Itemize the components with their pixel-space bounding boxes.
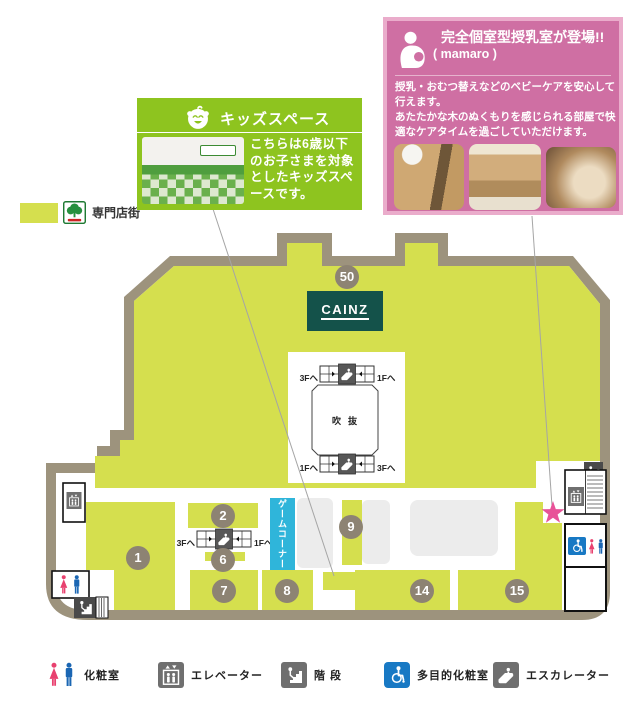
mamaro-pod-photo: [394, 144, 464, 210]
atrium-label: 吹抜: [318, 414, 378, 427]
legend-item-elevator: エレベーター: [158, 661, 263, 688]
mall-logo: [63, 201, 86, 224]
aisle-block: [362, 500, 390, 564]
accessible-icon: [384, 662, 410, 688]
anchor-store-sign: CAINZ: [307, 291, 383, 331]
game-corner-block: ゲームコーナー: [270, 498, 295, 570]
mamaro-callout-subtitle: ( mamaro ): [433, 47, 604, 61]
unit-badge-15: 15: [505, 579, 529, 603]
legend-item-escalator: エスカレーター: [493, 661, 610, 688]
mamaro-callout: 完全個室型授乳室が登場!! ( mamaro ) 授乳・おむつ替えなどのベビーケ…: [383, 17, 623, 215]
kids-space-photo: [142, 137, 244, 204]
anchor-store-label: CAINZ: [321, 302, 368, 320]
legend-label-escalator: エスカレーター: [526, 667, 610, 683]
floor-map-page: 50 CAINZ 吹抜 3Fへ 1Fへ 1Fへ 3Fへ 3Fへ 1Fへ ゲームコ…: [0, 0, 637, 711]
store-area-legend: 専門店街: [20, 201, 140, 224]
legend-item-accessible: 多目的化粧室: [384, 661, 489, 688]
unit-badge-7: 7: [212, 579, 236, 603]
unit-badge-1: 1: [126, 546, 150, 570]
mamaro-body-1: 授乳・おむつ替えなどのベビーケアを安心して行えます。: [395, 80, 617, 110]
baby-face-icon: [185, 105, 211, 131]
restroom-icon: [47, 661, 77, 688]
escalator-lower: [320, 454, 374, 474]
kids-space-callout: キッズスペース こちらは6歳以下のお子さまを対象としたキッズスペースです。: [137, 98, 362, 210]
legend-label-elevator: エレベーター: [191, 667, 263, 683]
mamaro-interior-photo: [469, 144, 541, 210]
escalator-icon: [493, 662, 519, 688]
kids-space-sign: [200, 145, 236, 156]
legend-label-stairs: 階 段: [314, 667, 342, 683]
legend-label-restroom: 化粧室: [84, 667, 120, 683]
legend-item-restroom: 化粧室: [47, 661, 120, 688]
to-1f-label: 1Fへ: [292, 462, 318, 474]
accessible-restroom-icon: [565, 524, 606, 567]
legend-label-accessible: 多目的化粧室: [417, 667, 489, 683]
unit-badge-2: 2: [211, 504, 235, 528]
elevator-right-icon: [565, 470, 606, 514]
unit-badge-9: 9: [339, 515, 363, 539]
legend-item-stairs: 階 段: [281, 661, 342, 688]
mamaro-body-2: あたたかな木のぬくもりを感じられる部屋で快適なケアタイムを過ごしていただけます。: [395, 110, 617, 140]
unit-badge-6: 6: [211, 548, 235, 572]
baby-care-photo: [546, 147, 616, 208]
mamaro-callout-title: 完全個室型授乳室が登場!!: [441, 29, 604, 47]
to-3f-label: 3Fへ: [377, 462, 403, 474]
unit-badge-8: 8: [275, 579, 299, 603]
unit-badge-14: 14: [410, 579, 434, 603]
stairs-left-icon: [74, 597, 108, 618]
game-corner-label: ゲームコーナー: [276, 499, 289, 569]
stairs-icon: [281, 662, 307, 688]
to-1f-label: 1Fへ: [377, 372, 403, 384]
kids-callout-body: こちらは6歳以下のお子さまを対象としたキッズスペースです。: [250, 136, 358, 203]
escalator-shops: [197, 529, 251, 549]
to-3f-label: 3Fへ: [169, 537, 195, 549]
store-area-label: 専門店街: [92, 204, 140, 221]
nursing-mother-icon: [395, 29, 433, 69]
kids-callout-title: キッズスペース: [220, 108, 330, 129]
elevator-left-icon: [63, 483, 85, 522]
service-room-box: [565, 567, 606, 611]
restroom-left-icon: [52, 571, 89, 598]
divider: [137, 132, 362, 133]
unit-14-block: [355, 570, 450, 610]
to-3f-label: 3Fへ: [292, 372, 318, 384]
elevator-icon: [158, 662, 184, 688]
unit-badge-50: 50: [335, 265, 359, 289]
divider: [395, 75, 611, 76]
floor-color-swatch: [20, 203, 58, 223]
aisle-block: [410, 500, 498, 556]
escalator-upper: [320, 364, 374, 384]
